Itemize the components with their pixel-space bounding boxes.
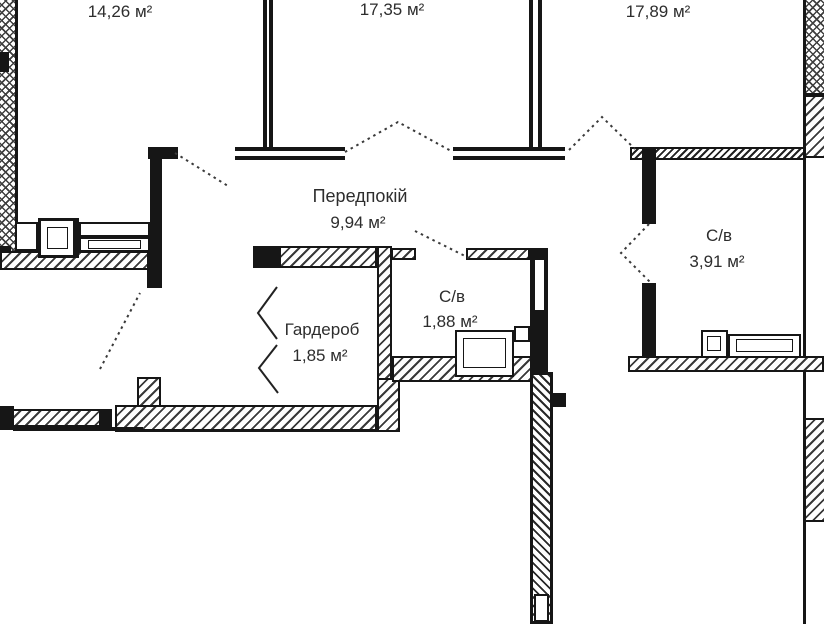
wall-bottom (115, 405, 377, 432)
door-frame (534, 594, 549, 622)
door-swing-room1 (175, 153, 228, 186)
wall-stub (148, 147, 178, 159)
wall-cap (0, 406, 14, 430)
outer-wall-left (0, 0, 18, 253)
wall-bottom-right-vertical (530, 372, 553, 624)
outer-wall-right (803, 522, 824, 624)
door-swing-entry (100, 293, 140, 369)
door-swing-bathroom-center (415, 231, 469, 258)
outer-wall-right (803, 158, 824, 356)
wall-corner (147, 251, 162, 288)
room-area-label: 3,91 м² (677, 252, 757, 272)
furniture-wc-inner (463, 338, 506, 368)
outer-wall-right (803, 95, 824, 158)
room-area-label: 9,94 м² (293, 213, 423, 233)
furniture-boiler (533, 258, 546, 312)
furniture-small-box (514, 326, 530, 342)
outer-wall-right (803, 418, 824, 522)
outer-wall-right (803, 0, 824, 95)
room-area-label: 1,88 м² (410, 312, 490, 332)
furniture-counter-inner (88, 240, 141, 249)
furniture-stove-inner (47, 227, 68, 249)
outer-wall-right (803, 372, 824, 418)
wall-bottom-left (0, 409, 112, 427)
room-name-label: Гардероб (272, 320, 372, 340)
furniture-cabinet (15, 222, 38, 251)
wall-bathroom-center-north (466, 248, 530, 260)
wall-pillar (137, 377, 161, 407)
wall-segment (0, 52, 9, 72)
door-swing-room2 (345, 122, 453, 152)
room-name-label: С/в (694, 226, 744, 246)
wall-wardrobe-north (279, 246, 377, 268)
wall-wardrobe-north (253, 246, 279, 268)
floor-plan: 14,26 м² 17,35 м² 17,89 м² Передпокій 9,… (0, 0, 824, 624)
wall-room1-east (150, 147, 162, 253)
room-area-label: 14,26 м² (70, 2, 170, 22)
door-swing-bathroom-right (621, 224, 651, 283)
wall-bathroom-right-west (642, 147, 656, 224)
folding-door-wardrobe (259, 345, 278, 393)
door-swing-room3 (569, 117, 635, 150)
room-area-label: 1,85 м² (280, 346, 360, 366)
wall-bathroom-right-south (628, 356, 824, 372)
wall-hallway-north (630, 147, 805, 160)
wall-hallway-north (235, 147, 345, 160)
wall-bathroom-right-west (642, 283, 656, 358)
furniture-sink-inner (736, 339, 793, 352)
wall-bathroom-center-north (391, 248, 416, 260)
room-area-label: 17,35 м² (342, 0, 442, 20)
furniture-washing-machine-inner (707, 336, 721, 351)
wall-wardrobe-bathroom (377, 246, 392, 380)
room-name-label: Передпокій (295, 186, 425, 208)
room-name-label: С/в (427, 287, 477, 307)
room-area-label: 17,89 м² (608, 2, 708, 22)
furniture-counter (79, 222, 150, 237)
wall-room2-room3 (529, 0, 542, 147)
wall-wardrobe-bathroom (377, 378, 400, 432)
wall-hallway-north (453, 147, 565, 160)
wall-stub (553, 393, 566, 407)
wall-cap (99, 409, 112, 427)
wall-room1-room2 (263, 0, 273, 147)
wall-baseline (13, 427, 143, 431)
